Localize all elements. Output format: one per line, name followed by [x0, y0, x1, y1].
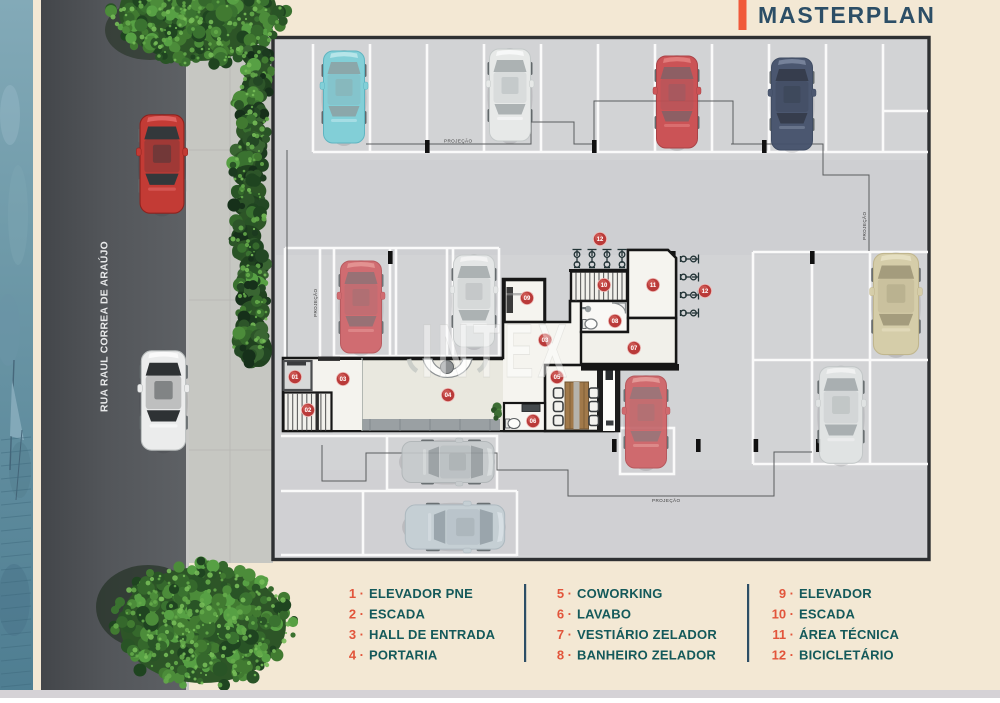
svg-text:2 ·: 2 ·: [349, 607, 364, 622]
svg-text:ELEVADOR: ELEVADOR: [799, 586, 872, 601]
svg-text:HALL DE ENTRADA: HALL DE ENTRADA: [369, 627, 496, 642]
svg-text:LAVABO: LAVABO: [577, 607, 631, 622]
svg-text:BICICLETÁRIO: BICICLETÁRIO: [799, 648, 894, 663]
svg-text:COWORKING: COWORKING: [577, 586, 663, 601]
svg-text:INTEX: INTEX: [421, 310, 571, 394]
svg-text:11: 11: [650, 283, 657, 289]
svg-text:09: 09: [524, 296, 531, 302]
svg-text:PROJEÇÃO: PROJEÇÃO: [652, 497, 680, 503]
svg-text:MASTERPLAN: MASTERPLAN: [758, 2, 936, 28]
svg-text:ESCADA: ESCADA: [369, 607, 426, 622]
svg-text:6 ·: 6 ·: [557, 607, 572, 622]
svg-text:PORTARIA: PORTARIA: [369, 648, 438, 663]
svg-text:PROJEÇÃO: PROJEÇÃO: [861, 212, 867, 240]
svg-text:02: 02: [305, 408, 312, 414]
svg-text:9 ·: 9 ·: [779, 586, 794, 601]
svg-text:7 ·: 7 ·: [557, 627, 572, 642]
svg-text:ÁREA TÉCNICA: ÁREA TÉCNICA: [799, 627, 900, 642]
svg-text:VESTIÁRIO ZELADOR: VESTIÁRIO ZELADOR: [577, 627, 717, 642]
svg-text:12: 12: [702, 289, 709, 295]
svg-text:4 ·: 4 ·: [349, 648, 364, 663]
svg-text:5 ·: 5 ·: [557, 586, 572, 601]
svg-text:07: 07: [631, 346, 638, 352]
svg-text:10 ·: 10 ·: [772, 607, 794, 622]
svg-text:12 ·: 12 ·: [772, 648, 794, 663]
svg-text:11 ·: 11 ·: [772, 627, 794, 642]
svg-text:01: 01: [292, 375, 299, 381]
svg-text:03: 03: [340, 377, 347, 383]
svg-text:8 ·: 8 ·: [557, 648, 572, 663]
svg-text:PROJEÇÃO: PROJEÇÃO: [444, 138, 472, 144]
svg-text:ESCADA: ESCADA: [799, 607, 856, 622]
svg-text:12: 12: [597, 237, 604, 243]
svg-text:BANHEIRO ZELADOR: BANHEIRO ZELADOR: [577, 648, 716, 663]
svg-text:1 ·: 1 ·: [349, 586, 364, 601]
svg-text:06: 06: [530, 419, 537, 425]
svg-text:3 ·: 3 ·: [349, 627, 364, 642]
svg-text:RUA RAUL CORREA DE ARAÚJO: RUA RAUL CORREA DE ARAÚJO: [98, 241, 111, 412]
svg-text:08: 08: [612, 319, 619, 325]
svg-text:PROJEÇÃO: PROJEÇÃO: [312, 289, 318, 317]
svg-text:ELEVADOR PNE: ELEVADOR PNE: [369, 586, 473, 601]
svg-text:10: 10: [601, 283, 608, 289]
